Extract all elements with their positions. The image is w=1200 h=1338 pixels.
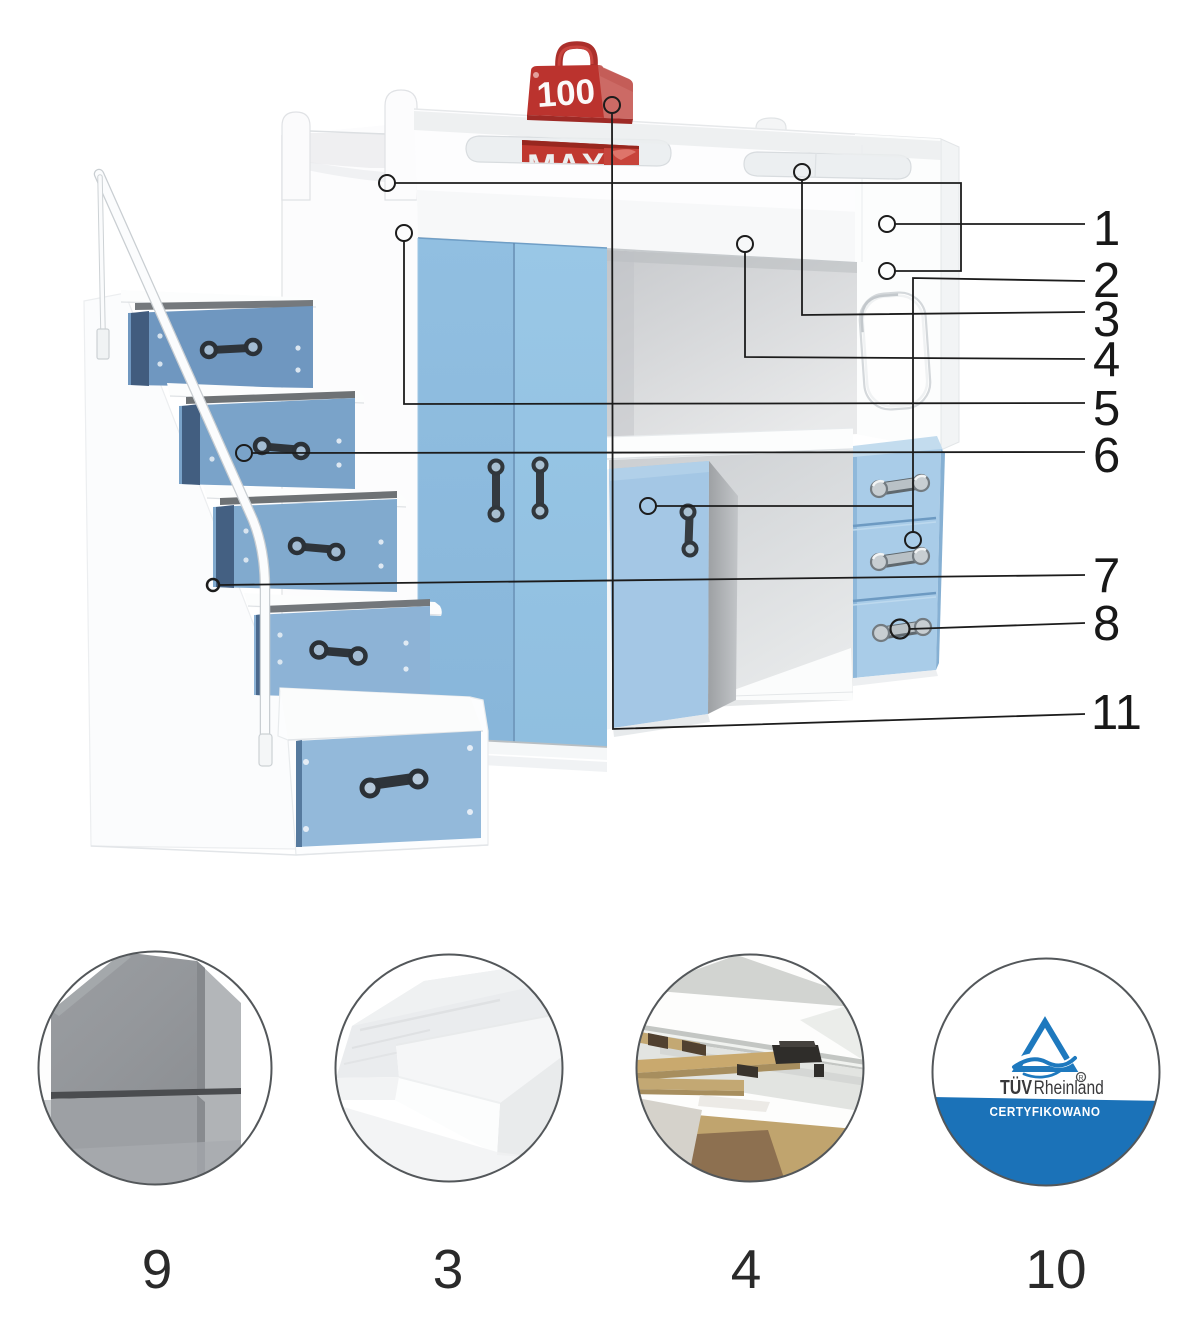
svg-text:CERTYFIKOWANO: CERTYFIKOWANO [990, 1104, 1101, 1119]
svg-text:TÜV: TÜV [1000, 1076, 1032, 1098]
svg-text:100: 100 [535, 72, 596, 115]
svg-text:4: 4 [731, 1238, 762, 1300]
svg-text:1: 1 [1093, 202, 1120, 256]
svg-text:3: 3 [433, 1238, 464, 1300]
svg-text:7: 7 [1093, 549, 1120, 603]
svg-text:10: 10 [1025, 1238, 1086, 1300]
svg-text:11: 11 [1091, 686, 1142, 740]
svg-text:5: 5 [1093, 382, 1120, 436]
svg-text:9: 9 [142, 1238, 173, 1300]
svg-text:Rheinland: Rheinland [1034, 1076, 1104, 1098]
svg-text:8: 8 [1093, 597, 1120, 651]
svg-text:6: 6 [1093, 429, 1120, 483]
svg-text:4: 4 [1093, 333, 1120, 387]
